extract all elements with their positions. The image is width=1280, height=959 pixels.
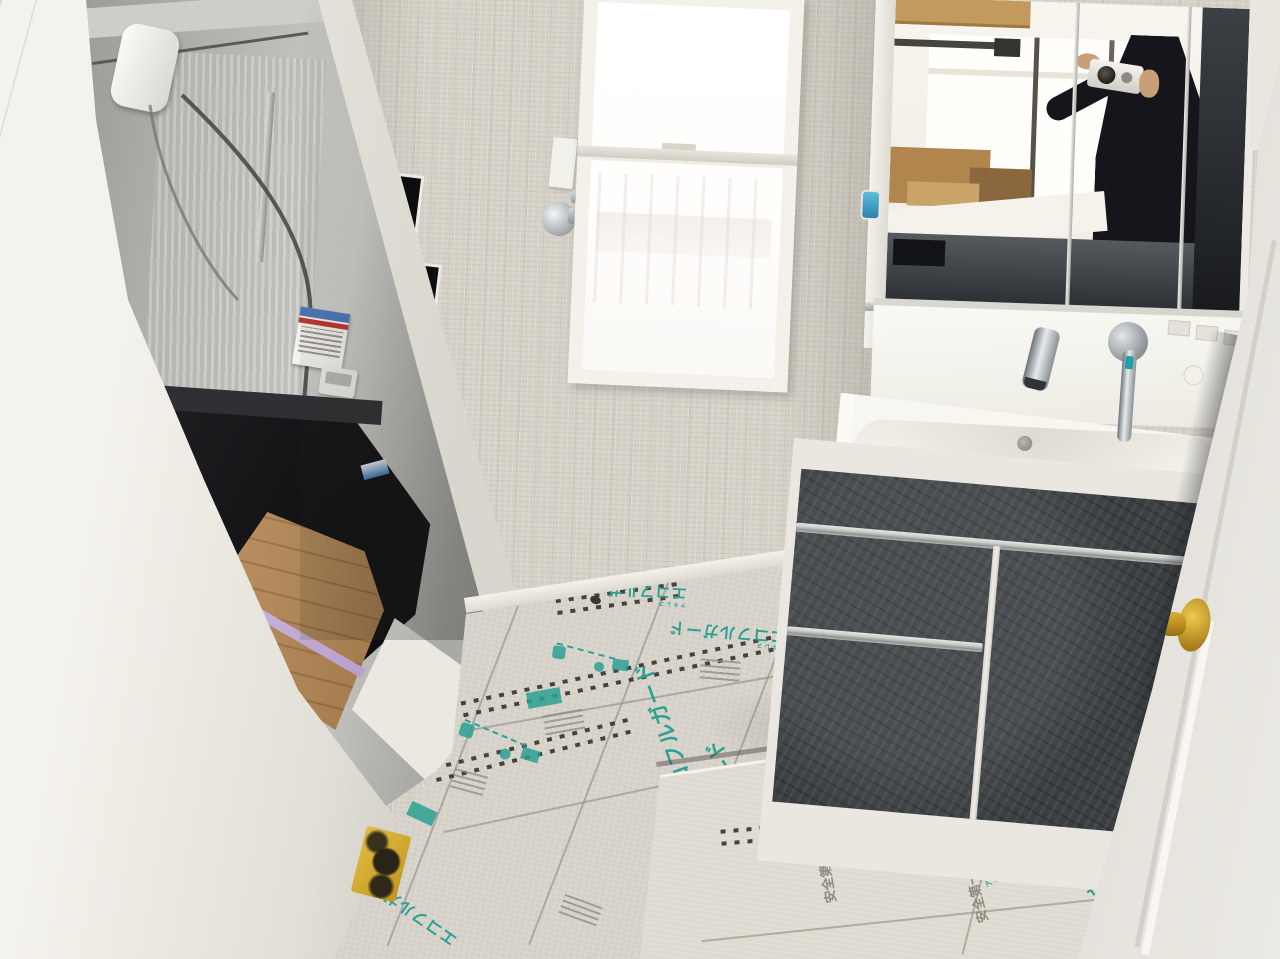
embossed-icon — [1168, 320, 1191, 337]
cabinet-door-seam — [969, 546, 1000, 820]
window-glass — [582, 2, 790, 378]
view-building-silhouette — [593, 172, 774, 310]
window — [567, 0, 804, 393]
camera-lens — [1096, 65, 1117, 86]
reflected-rail-block — [994, 38, 1021, 57]
cabinet-switch-cover-blue — [862, 192, 879, 219]
photographer-fingers — [1139, 69, 1160, 98]
camera-dial — [1120, 71, 1133, 84]
lever-teal-sticker — [1125, 356, 1134, 370]
drawer-handle — [787, 626, 983, 652]
washroom-photo: アキレス エコフルガード アキレス エコフルガード アキレス エコフルガード ア… — [0, 0, 1280, 959]
reflected-dark-box — [893, 239, 946, 267]
sheet-pictogram-cluster — [538, 625, 632, 676]
sheet-fine-print — [557, 894, 603, 930]
sheet-fine-print — [450, 768, 488, 796]
reflected-wood-beam — [895, 0, 1031, 28]
warning-label — [292, 306, 350, 371]
sheet-print-swatch — [406, 801, 438, 826]
bath-control-panel — [318, 365, 358, 398]
blank-cover-plate — [548, 137, 577, 189]
mirror-edge-dark — [1192, 7, 1250, 314]
